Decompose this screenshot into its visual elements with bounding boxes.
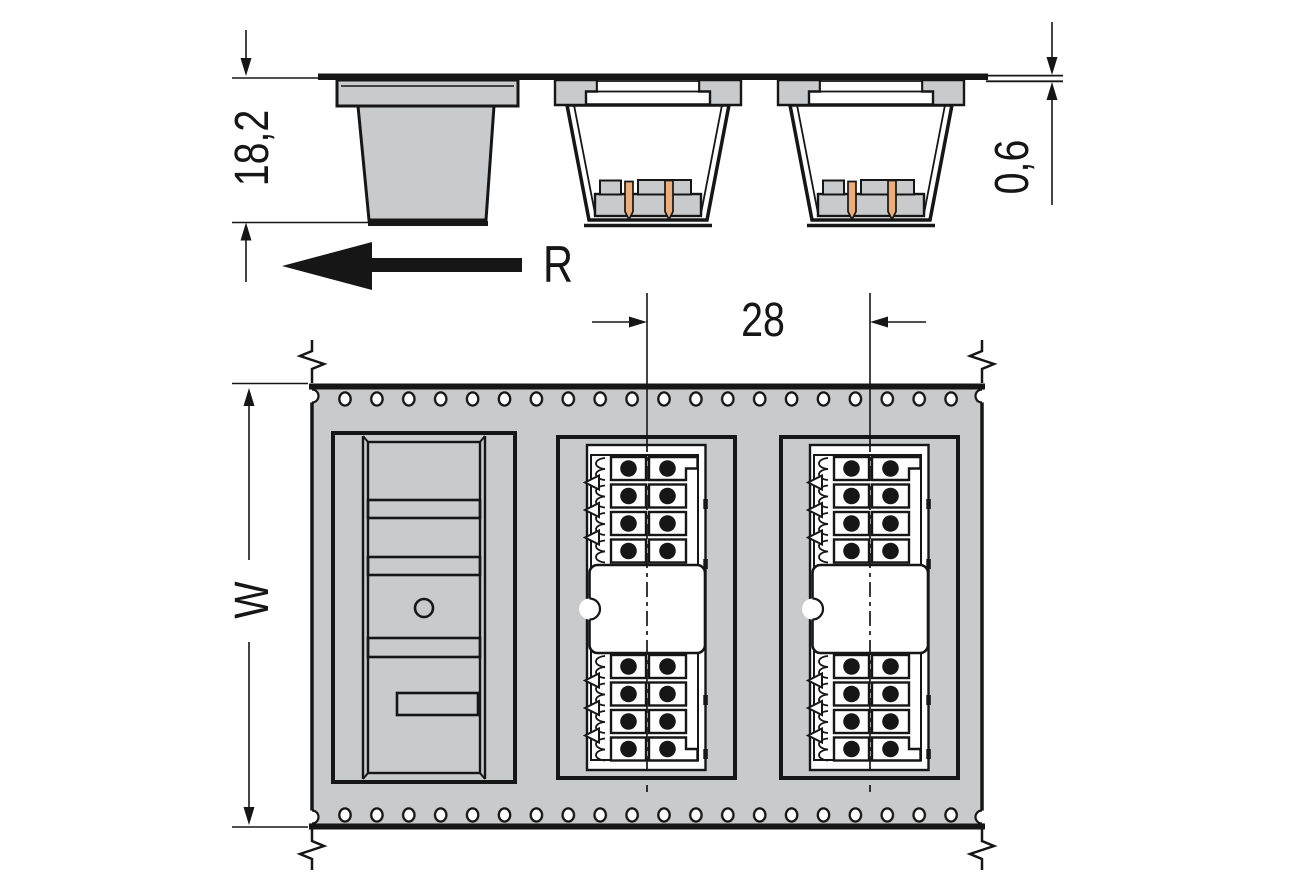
pocket-loaded-side-2 bbox=[778, 80, 964, 226]
tape-edge-on-section bbox=[986, 76, 1063, 82]
dim-tape-thickness: 0,6 bbox=[985, 22, 1057, 205]
break-symbol-top-right bbox=[970, 340, 994, 383]
break-symbol-top-left bbox=[300, 340, 324, 383]
sprocket-holes-bottom-row bbox=[337, 801, 977, 827]
dim-thickness-label: 0,6 bbox=[985, 140, 1039, 195]
dim-pocket-pitch: 28 bbox=[592, 293, 926, 384]
dim-tape-width: W bbox=[225, 384, 308, 828]
dim-pitch-label: 28 bbox=[741, 293, 785, 347]
drawing-canvas: 18,2 0,6 R bbox=[0, 0, 1307, 886]
pocket-loaded-side-1 bbox=[555, 80, 741, 226]
connector-tape-drawing: 18,2 0,6 R bbox=[0, 0, 1307, 886]
unreeling-direction: R bbox=[282, 235, 573, 294]
dim-width-label: W bbox=[225, 581, 279, 619]
direction-arrow-icon bbox=[282, 242, 372, 290]
dim-height: 18,2 bbox=[225, 30, 368, 282]
break-symbol-bottom-right bbox=[970, 827, 994, 870]
direction-label: R bbox=[543, 235, 573, 294]
side-view bbox=[232, 74, 1063, 226]
sprocket-holes-top-row bbox=[337, 386, 977, 412]
pocket-empty-side bbox=[337, 80, 518, 224]
break-symbol-bottom-left bbox=[300, 827, 324, 870]
dim-height-label: 18,2 bbox=[225, 110, 279, 187]
pocket-empty-top bbox=[333, 433, 515, 782]
